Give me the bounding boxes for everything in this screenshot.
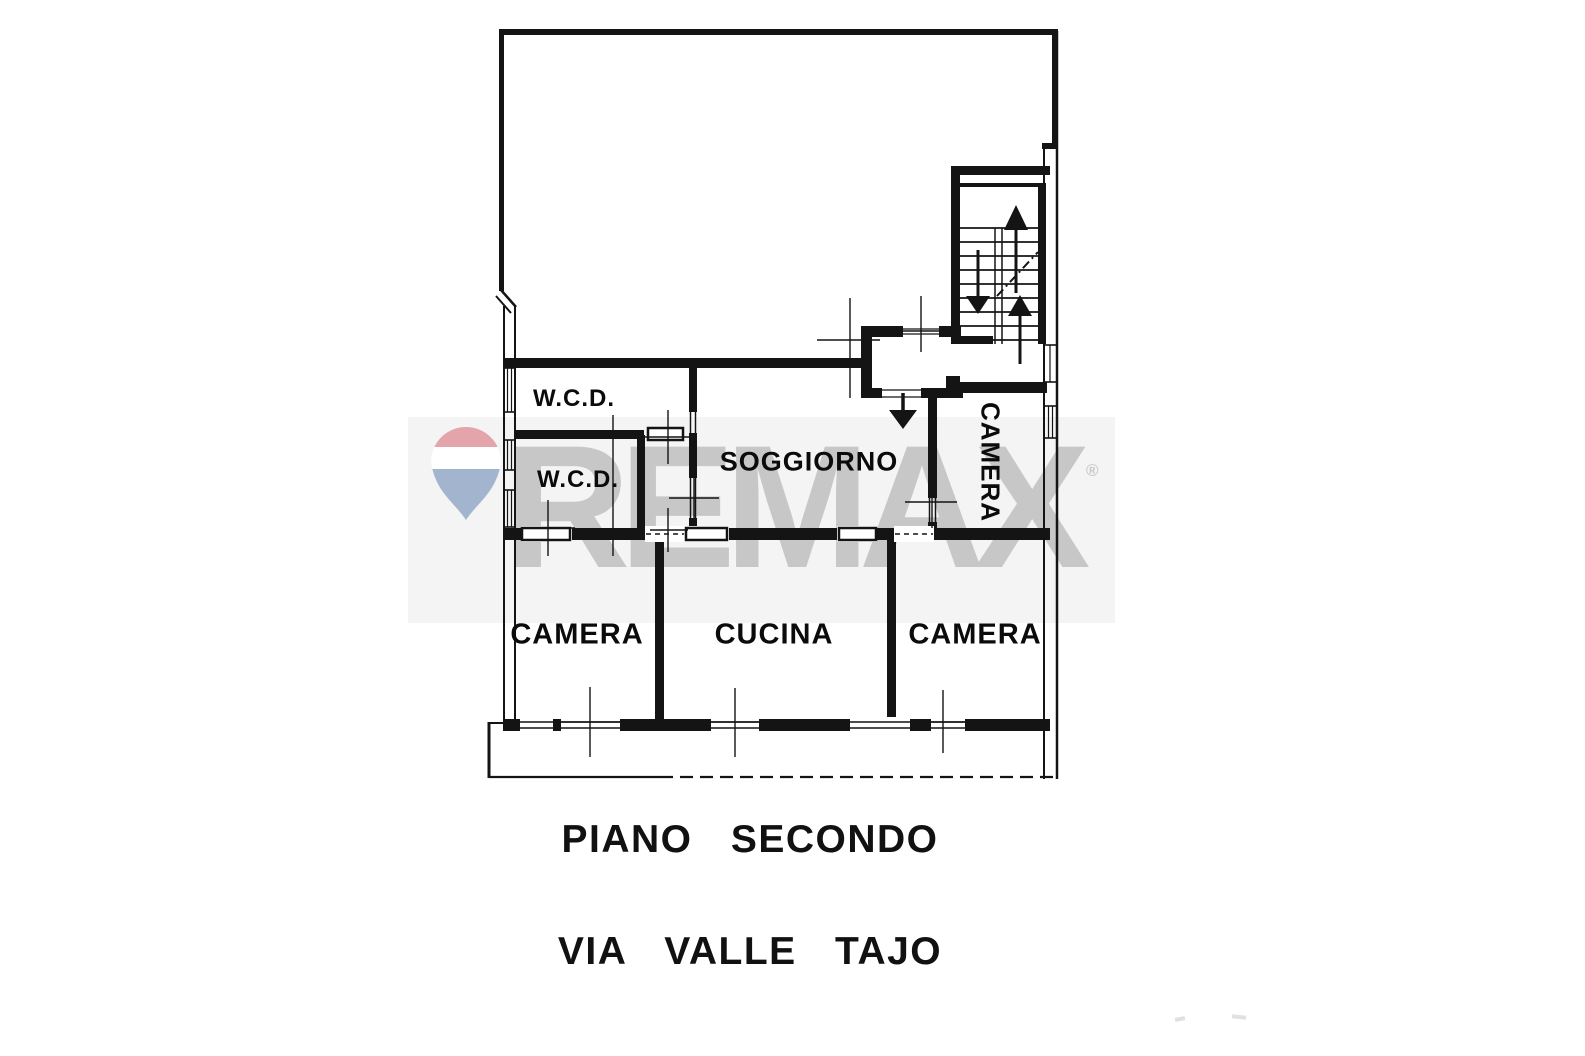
room-label-wcd-upper: W.C.D. bbox=[533, 385, 615, 413]
room-label-camera-left: CAMERA bbox=[510, 619, 643, 652]
wall-vestibule-bottom bbox=[921, 388, 963, 398]
staircase bbox=[960, 205, 1038, 364]
room-label-camera-right: CAMERA bbox=[908, 619, 1041, 652]
room-label-soggiorno: SOGGIORNO bbox=[720, 447, 899, 478]
wall-soggiorno-left bbox=[689, 433, 697, 478]
door-leaf bbox=[648, 428, 683, 440]
wall-stairwell-inner-top bbox=[960, 183, 1046, 187]
wall-stairwell-top bbox=[951, 166, 1050, 175]
wall-cucina-camera bbox=[887, 532, 896, 723]
scanned-floorplan-document: REMAX ® bbox=[0, 0, 1585, 1056]
wall-top bbox=[500, 29, 1058, 35]
door-leaf bbox=[686, 528, 727, 540]
wall-left-upper bbox=[499, 29, 504, 291]
room-label-cucina: CUCINA bbox=[715, 619, 834, 652]
stairs-up-arrow-icon bbox=[1004, 205, 1028, 230]
wall-wcd-divider bbox=[515, 430, 644, 439]
wall-wcd-right bbox=[637, 435, 645, 532]
entrance-arrow-icon bbox=[889, 410, 917, 429]
caption-street-name: VIA VALLE TAJO bbox=[0, 930, 1500, 974]
wall-main-horizontal bbox=[503, 358, 867, 368]
door-leaf bbox=[839, 528, 876, 540]
wall-soggiorno-left bbox=[689, 363, 697, 412]
wall-vestibule-left bbox=[861, 326, 872, 398]
caption-floor-level: PIANO SECONDO bbox=[0, 818, 1500, 862]
floorplan-drawing bbox=[0, 0, 1585, 1056]
wall-vestibule-bottom bbox=[861, 388, 882, 398]
door-leaf bbox=[522, 528, 570, 540]
wall-camera-cucina bbox=[655, 532, 664, 722]
room-label-wcd-lower: W.C.D. bbox=[537, 466, 619, 494]
wall-band-horizontal bbox=[503, 528, 1050, 540]
room-label-camera-middle: CAMERA bbox=[975, 402, 1006, 522]
entrance bbox=[889, 393, 917, 429]
wall-stairwell-left bbox=[951, 166, 960, 344]
wall-camera-top-step bbox=[946, 376, 960, 384]
